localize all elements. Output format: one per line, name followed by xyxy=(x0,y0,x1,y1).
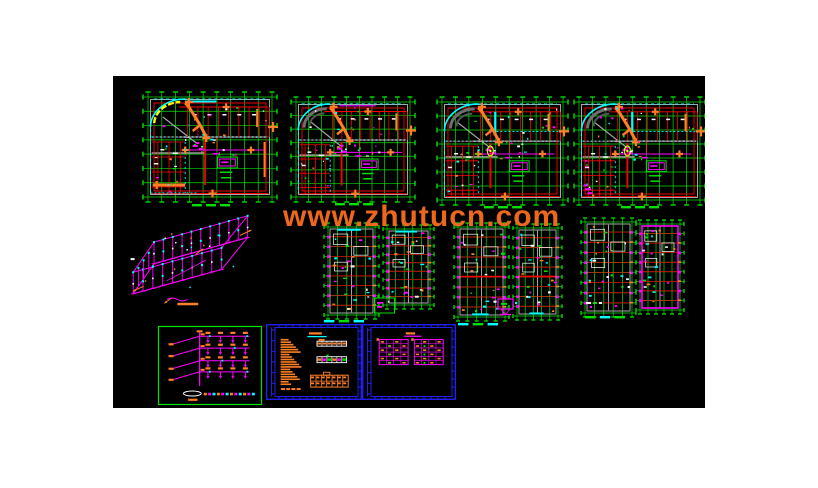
watermark-text: www.zhutucn.com xyxy=(283,202,560,232)
floor-plan-3 xyxy=(442,102,563,200)
column-grid xyxy=(291,97,415,202)
strip-walls xyxy=(389,231,428,303)
monitor-shape xyxy=(498,299,517,315)
monitor-symbol xyxy=(497,299,521,317)
machine-room-table xyxy=(510,161,529,182)
strip-walls xyxy=(519,230,556,314)
curtainwall-cyan xyxy=(150,99,268,193)
floor-plan-1 xyxy=(148,97,272,197)
tree-bottom-text xyxy=(183,391,254,401)
title-text-dash xyxy=(585,316,625,318)
strip-walls xyxy=(587,224,630,311)
machine-room-table xyxy=(647,161,666,182)
axon-frame xyxy=(133,216,247,294)
magenta-details xyxy=(584,146,692,194)
sheet-content xyxy=(377,332,444,364)
unit-strip-a2 xyxy=(387,229,430,305)
strip-walls xyxy=(330,229,373,313)
plan-4-title xyxy=(621,205,659,209)
mark-row xyxy=(586,302,602,308)
axon-risers xyxy=(131,215,249,294)
mini-box xyxy=(375,296,395,313)
strips-b-title xyxy=(458,322,498,326)
unit-strip-b2 xyxy=(517,228,558,316)
legend-sheet xyxy=(362,324,456,400)
strips-a-title xyxy=(324,319,364,323)
axonometric-wiring-diagram xyxy=(128,213,258,307)
unit-strip-a1 xyxy=(328,227,375,315)
notes-sheet xyxy=(266,324,362,400)
page: www.zhutucn.com xyxy=(0,0,818,488)
tree-lines xyxy=(169,330,250,386)
column-grid xyxy=(574,97,705,205)
cad-canvas: www.zhutucn.com xyxy=(113,76,705,408)
title-text-dash xyxy=(324,320,364,322)
plan-1-title xyxy=(192,203,230,207)
detail-mark-c xyxy=(586,300,604,309)
machine-room-table xyxy=(360,159,378,180)
mini-detail-box xyxy=(374,296,395,314)
title-text-dash xyxy=(192,204,230,206)
riser-tree-diagram xyxy=(158,326,262,405)
title-text-dash xyxy=(458,323,498,325)
floor-plan-2 xyxy=(296,102,410,197)
column-grid xyxy=(437,97,568,205)
floor-plan-4 xyxy=(579,102,700,200)
title-text-dash xyxy=(621,206,659,208)
unit-strip-c2 xyxy=(640,224,680,310)
machine-room-table xyxy=(217,157,237,179)
sheet-content xyxy=(281,332,349,390)
strips-c-title xyxy=(585,315,625,319)
